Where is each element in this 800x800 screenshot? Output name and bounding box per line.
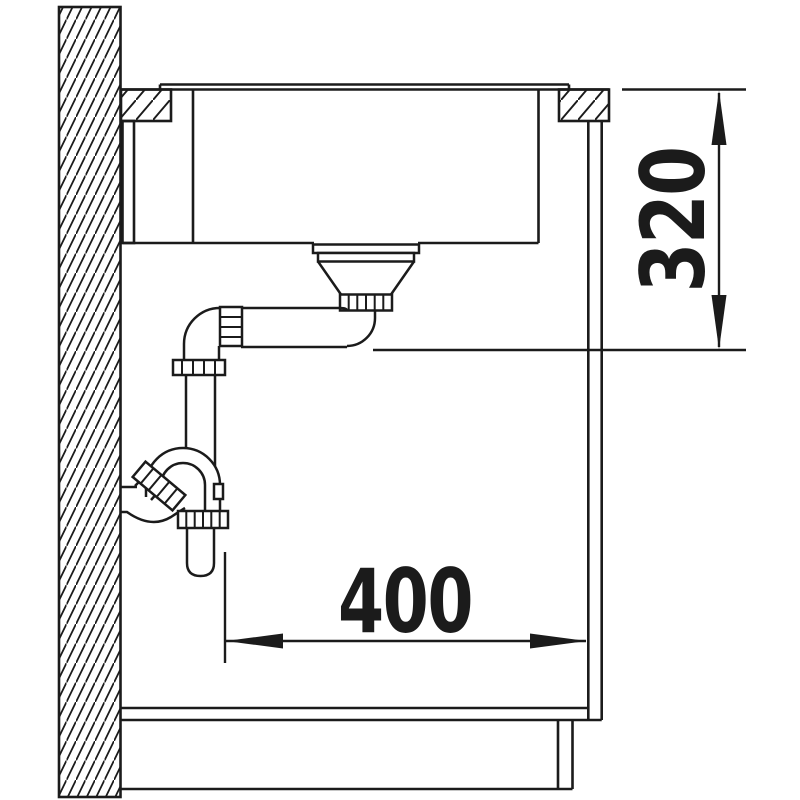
- drain-flange-plate: [313, 245, 419, 254]
- trap-union-nut-diagonal: [133, 462, 186, 511]
- cabinet-plinth: [558, 720, 573, 789]
- cabinet-bottom-panel: [121, 708, 602, 720]
- dimension-320: 320: [373, 90, 746, 351]
- sink-installation-drawing: 320 400: [0, 0, 800, 800]
- dimension-400: 400: [225, 550, 587, 663]
- arrow-left-icon: [226, 634, 283, 649]
- trap-cup-nut: [178, 511, 228, 528]
- cabinet-front-panel: [588, 121, 601, 720]
- siphon-trap: [121, 375, 228, 576]
- drain-funnel: [318, 262, 414, 295]
- dimension-320-label: 320: [622, 148, 725, 293]
- pipe-nut-vertical-upper: [173, 360, 225, 375]
- countertop-left-block: [121, 90, 171, 122]
- elbow-bend: [184, 308, 220, 360]
- wall-batten: [123, 121, 135, 243]
- drain-flange-lower: [318, 253, 414, 262]
- dimension-400-label: 400: [338, 550, 472, 653]
- pipe-top-line: [242, 308, 347, 311]
- drain-union-nut: [340, 295, 392, 311]
- wall-hatch: [59, 7, 121, 797]
- wall-section: [59, 7, 121, 797]
- countertop-right-block: [559, 90, 609, 122]
- arrow-right-icon: [530, 634, 587, 649]
- trap-clip-tab: [214, 484, 223, 499]
- wall-outlet-elbow: [121, 508, 185, 522]
- sink-bowl: [123, 85, 570, 244]
- pipe-nut-horizontal: [220, 307, 242, 346]
- tailpiece-curve: [347, 311, 375, 347]
- drain-pipe-horizontal: [184, 308, 375, 360]
- technical-drawing-canvas: 320 400: [0, 0, 800, 800]
- arrow-down-icon: [712, 295, 727, 350]
- drain-assembly: [313, 245, 419, 311]
- arrow-up-icon: [712, 91, 727, 146]
- trap-cup: [187, 528, 214, 576]
